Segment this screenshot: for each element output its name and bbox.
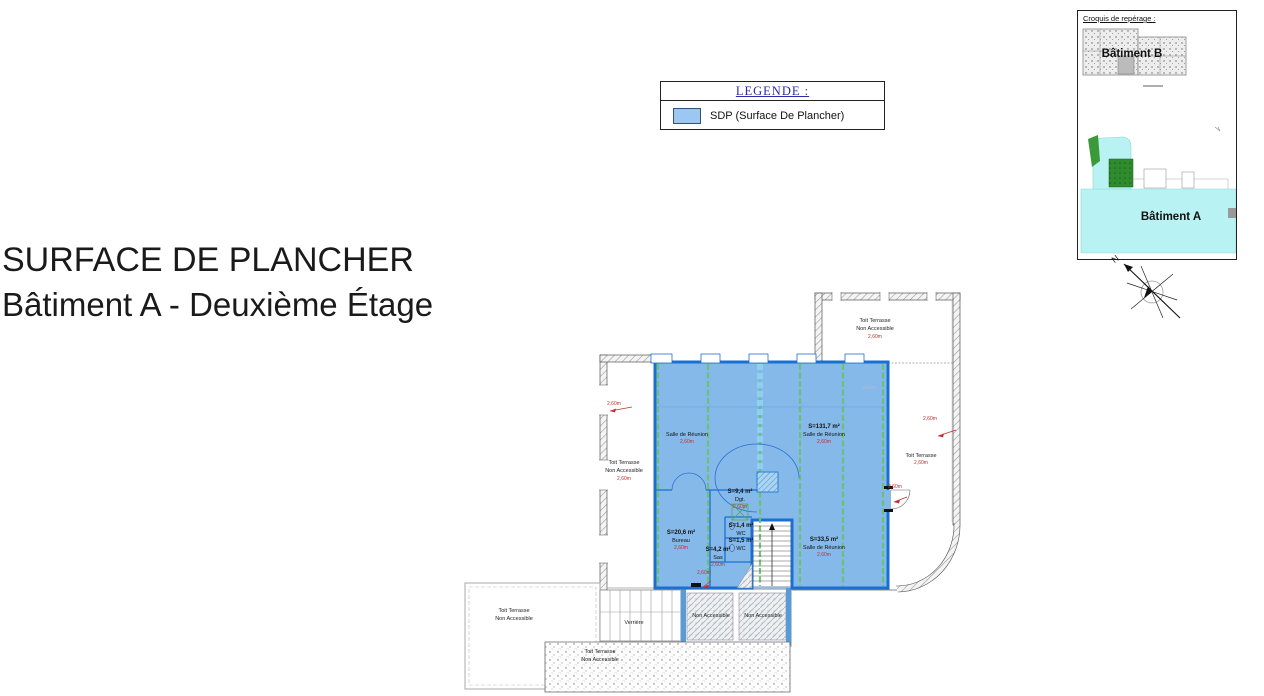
room-label-wc-1: S=1,4 m² WC	[719, 523, 763, 538]
terrace-label-bottom: Toit Terrasse Non Accessible	[556, 648, 644, 665]
room-label-salle-left: Salle de Réunion 2,60m	[652, 432, 722, 446]
floor-plan-document: SURFACE DE PLANCHER Bâtiment A - Deuxièm…	[0, 0, 1264, 696]
terrace-line: Non Accessible	[840, 325, 910, 333]
terrace-line: Non Accessible	[684, 612, 738, 620]
room-name: Sas	[694, 555, 742, 562]
batiment-b-label: Bâtiment B	[1086, 48, 1178, 60]
room-name: Salle de Réunion	[789, 545, 859, 552]
dim-annotation-door: 2,60m	[888, 484, 902, 490]
panel-label-right: Non Accessible	[736, 612, 790, 620]
terrace-line: Non Accessible	[481, 615, 547, 623]
room-annotation: 2,60m	[652, 439, 722, 446]
room-name: WC	[719, 531, 763, 538]
room-name: Salle de Réunion	[652, 432, 722, 439]
location-sketch-title: Croquis de repérage :	[1083, 14, 1156, 23]
verriere-label: Verrière	[607, 619, 661, 627]
room-area: S=4,2 m²	[694, 547, 742, 555]
terrace-label-left: Toit Terrasse Non Accessible 2,60m	[594, 459, 654, 483]
dim-annotation-left: 2,60m	[607, 401, 621, 407]
terrace-line: Non Accessible	[736, 612, 790, 620]
batiment-a-label: Bâtiment A	[1127, 211, 1215, 223]
terrace-line: Toit Terrasse	[840, 317, 910, 325]
sdp-color-swatch	[673, 108, 701, 124]
room-name: Dgt.	[715, 497, 765, 504]
terrace-line: Toit Terrasse	[481, 607, 547, 615]
terrace-annotation: 2,60m	[893, 460, 949, 468]
terrace-label-bottom-left: Toit Terrasse Non Accessible	[481, 607, 547, 624]
room-area: S=33,5 m²	[789, 537, 859, 545]
legend-box: LEGENDE : SDP (Surface De Plancher)	[660, 81, 885, 130]
terrace-label-right: Toit Terrasse 2,60m	[893, 452, 949, 468]
terrace-line: Toit Terrasse	[594, 459, 654, 467]
room-area: S=9,4 m²	[715, 489, 765, 497]
room-label-sas: S=4,2 m² Sas 2,60m	[694, 547, 742, 568]
page-subtitle: Bâtiment A - Deuxième Étage	[2, 286, 433, 324]
terrace-label-top-right: Toit Terrasse Non Accessible 2,60m	[840, 317, 910, 341]
panel-label-left: Non Accessible	[684, 612, 738, 620]
room-name: Bureau	[653, 538, 709, 545]
room-annotation: 2,60m	[789, 552, 859, 559]
room-annotation: 2,60m	[694, 562, 742, 569]
floor-plan-drawing	[460, 290, 965, 696]
legend-header: LEGENDE :	[661, 82, 884, 101]
room-area: S=1,5 m²	[719, 538, 763, 546]
terrace-line: Non Accessible	[594, 467, 654, 475]
terrace-annotation: 2,60m	[840, 334, 910, 342]
terrace-line: Non Accessible	[556, 656, 644, 664]
room-label-salle-33: S=33,5 m² Salle de Réunion 2,60m	[789, 537, 859, 558]
room-annotation: 2,60m	[789, 439, 859, 446]
room-area: S=131,7 m²	[789, 424, 859, 432]
dim-annotation-bottom: 2,60m	[697, 570, 711, 576]
room-label-degagement: S=9,4 m² Dgt. 2,60m	[715, 489, 765, 510]
terrace-line: Verrière	[607, 619, 661, 627]
terrace-annotation: 2,60m	[594, 476, 654, 484]
legend-row: SDP (Surface De Plancher)	[661, 101, 884, 130]
room-area: S=20,6 m²	[653, 530, 709, 538]
terrace-line: Toit Terrasse	[893, 452, 949, 460]
street-label-smudge	[1143, 85, 1163, 87]
room-area: S=1,4 m²	[719, 523, 763, 531]
legend-item-label: SDP (Surface De Plancher)	[710, 110, 844, 122]
page-title: SURFACE DE PLANCHER	[2, 241, 414, 280]
terrace-line: Toit Terrasse	[556, 648, 644, 656]
location-sketch-box: Croquis de repérage : Bâtiment B Bâtimen…	[1077, 10, 1237, 260]
room-label-salle-main: S=131,7 m² Salle de Réunion 2,60m	[789, 424, 859, 445]
dim-annotation-right: 2,60m	[923, 416, 937, 422]
room-annotation: 2,60m	[715, 504, 765, 511]
room-name: Salle de Réunion	[789, 432, 859, 439]
